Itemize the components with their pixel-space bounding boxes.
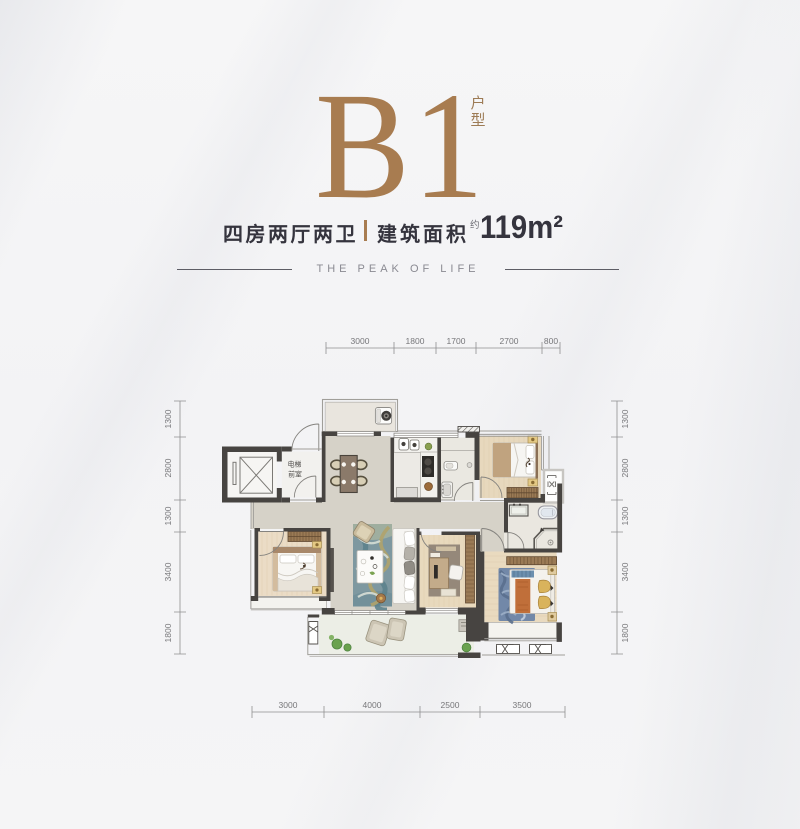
svg-text:2700: 2700 [500,336,519,346]
svg-text:1300: 1300 [620,409,630,428]
svg-text:3000: 3000 [351,336,370,346]
svg-text:1300: 1300 [620,506,630,525]
svg-text:1800: 1800 [163,623,173,642]
svg-text:3400: 3400 [163,562,173,581]
svg-text:1300: 1300 [163,409,173,428]
svg-text:1700: 1700 [447,336,466,346]
svg-text:3500: 3500 [513,700,532,710]
svg-text:1800: 1800 [406,336,425,346]
svg-text:1800: 1800 [620,623,630,642]
svg-text:3000: 3000 [279,700,298,710]
svg-text:电梯: 电梯 [288,460,302,469]
svg-text:800: 800 [544,336,558,346]
svg-text:2800: 2800 [620,458,630,477]
svg-text:2500: 2500 [441,700,460,710]
svg-text:1300: 1300 [163,506,173,525]
svg-text:4000: 4000 [363,700,382,710]
svg-text:前室: 前室 [288,470,302,479]
svg-text:2800: 2800 [163,458,173,477]
svg-text:3400: 3400 [620,562,630,581]
